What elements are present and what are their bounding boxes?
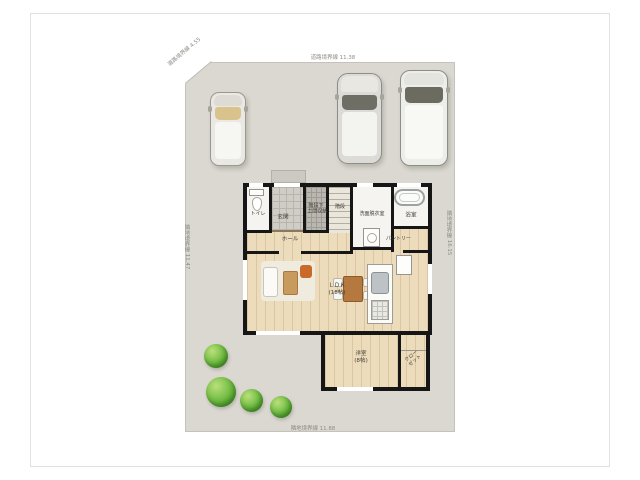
car-roof bbox=[405, 105, 443, 159]
wall-hall-ldk-right bbox=[301, 251, 353, 254]
window-ldk-left bbox=[243, 260, 247, 300]
boundary-label-top: 道路境界線 11.38 bbox=[306, 54, 360, 61]
tree bbox=[206, 377, 236, 407]
tree bbox=[270, 396, 292, 418]
wall-hall-ldk-left bbox=[243, 251, 279, 254]
bathtub bbox=[394, 189, 425, 206]
label-storage: 階段下 土間収納 bbox=[307, 202, 324, 213]
car-mirror bbox=[398, 87, 402, 93]
window-ldk-bottom bbox=[256, 331, 300, 335]
label-stairs: 階段 bbox=[331, 204, 348, 210]
sofa bbox=[263, 267, 278, 297]
boundary-label-left: 隣地境界線 11.47 bbox=[184, 225, 191, 279]
window-kitchen-right bbox=[428, 264, 432, 294]
tree bbox=[204, 344, 228, 368]
entrance-porch-step bbox=[271, 170, 306, 183]
label-bedroom: 洋室 (8帖) bbox=[347, 350, 375, 363]
refrigerator bbox=[396, 255, 412, 275]
label-entrance: 玄関 bbox=[273, 213, 294, 220]
wall-pantry-ldk bbox=[403, 250, 432, 253]
wall-toilet-hall bbox=[243, 230, 272, 233]
toilet-tank bbox=[249, 189, 264, 196]
wall-washroom-bottom bbox=[350, 247, 394, 250]
car-mirror bbox=[380, 94, 384, 100]
bathtub-inner bbox=[399, 193, 420, 202]
car-roof bbox=[342, 112, 377, 156]
washing-machine bbox=[363, 228, 380, 247]
stairs-floor bbox=[329, 187, 350, 233]
car-hood bbox=[404, 73, 444, 85]
car-roof bbox=[215, 122, 241, 159]
wall-washroom-bath bbox=[391, 183, 394, 252]
wall-toilet-entrance bbox=[269, 183, 272, 233]
washing-machine-drum bbox=[367, 233, 377, 243]
wall-bath-pantry bbox=[391, 226, 432, 229]
window-washroom bbox=[357, 183, 373, 187]
window-toilet bbox=[249, 183, 263, 187]
tree bbox=[240, 389, 263, 412]
car-hood bbox=[214, 95, 242, 106]
car-windshield bbox=[342, 95, 377, 110]
car-minivan bbox=[400, 70, 448, 166]
label-pantry: パントリー bbox=[386, 236, 408, 242]
car-hood bbox=[341, 76, 378, 92]
floor-plan-page: 道路境界線 11.38 隣地境界線 11.88 隣地境界線 11.47 隣地境界… bbox=[0, 0, 640, 480]
wall-storage-hall bbox=[303, 230, 329, 233]
kitchen-sink bbox=[371, 272, 389, 294]
entrance-tile-floor bbox=[272, 187, 303, 231]
window-bath bbox=[397, 183, 421, 187]
car-mirror bbox=[446, 87, 450, 93]
boundary-label-bottom: 隣地境界線 11.88 bbox=[286, 425, 340, 432]
kitchen-stove bbox=[371, 300, 389, 320]
wall-bedroom-closet bbox=[398, 335, 401, 387]
car-windshield bbox=[215, 107, 241, 120]
car-mirror bbox=[208, 106, 212, 112]
label-toilet: トイレ bbox=[249, 211, 268, 217]
boundary-label-right: 隣地境界線 16.15 bbox=[446, 211, 453, 265]
car-mirror bbox=[244, 106, 248, 112]
label-ldk: ＬＤＫ (18帖) bbox=[324, 282, 349, 295]
label-washroom: 洗面脱衣室 bbox=[360, 211, 385, 217]
coffee-table bbox=[283, 271, 298, 295]
car-windshield bbox=[405, 87, 443, 103]
car-compact bbox=[210, 92, 246, 166]
entrance-door bbox=[274, 183, 300, 187]
wall-stairs-washroom bbox=[350, 183, 353, 251]
car-mirror bbox=[335, 94, 339, 100]
label-hall: ホール bbox=[277, 235, 302, 242]
label-bath: 浴室 bbox=[399, 211, 423, 218]
window-bedroom bbox=[337, 387, 373, 391]
entrance-step-edge bbox=[272, 230, 303, 232]
wall-entrance-storage bbox=[303, 183, 306, 233]
car-suv bbox=[337, 73, 382, 164]
accent-chair bbox=[300, 265, 312, 278]
